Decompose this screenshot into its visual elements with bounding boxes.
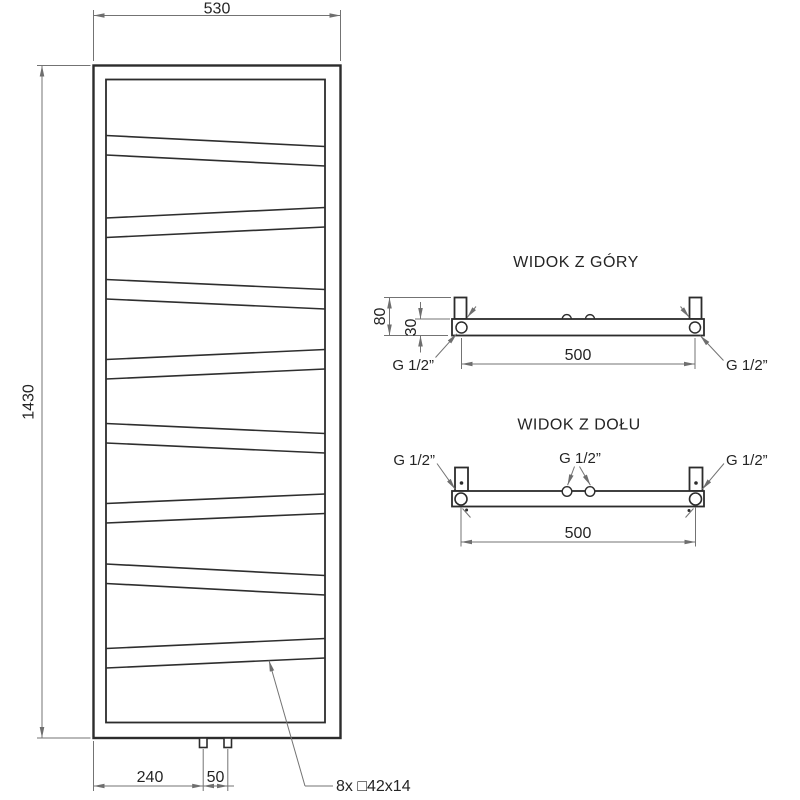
radiator-technical-drawing: 530 1430 240 50 8x □42x14 WIDOK: [0, 0, 800, 800]
tube-band-2: [106, 208, 325, 238]
leader-dot-left: [465, 509, 468, 512]
dim-240-label: 240: [137, 769, 164, 786]
dim-50-label: 50: [207, 769, 225, 786]
dim-530-label: 530: [204, 1, 231, 18]
bracket-dot-left: [460, 481, 464, 485]
wall-bracket-left: [455, 298, 467, 320]
connection-label-right: G 1/2”: [726, 357, 768, 374]
tube-spec-label: 8x □42x14: [336, 778, 411, 795]
wall-bracket-right: [690, 298, 702, 320]
leader-dot-right: [688, 509, 691, 512]
connection-label-right: G 1/2”: [726, 452, 768, 469]
connection-label-center: G 1/2”: [559, 450, 601, 467]
wall-bracket-left: [455, 468, 468, 492]
bracket-corner-arrow-right: [681, 307, 690, 318]
center-connection-circle-2: [585, 487, 595, 497]
front-view: 530 1430 240 50 8x □42x14: [21, 1, 411, 796]
dim-500-top-label: 500: [565, 347, 592, 364]
dim-500-top-view: 500: [462, 338, 696, 369]
dim-1430-label: 1430: [21, 384, 38, 420]
tube-band-4: [106, 350, 325, 380]
tube-band-5: [106, 424, 325, 454]
tube-bands: [106, 136, 325, 669]
dim-1430: 1430: [21, 66, 91, 739]
top-view: WIDOK Z GÓRY 80 30: [372, 252, 768, 374]
bottom-view: WIDOK Z DOŁU G 1/2” G 1/2” G 1/2”: [393, 417, 767, 547]
dim-30-label: 30: [403, 319, 420, 337]
tube-band-7: [106, 564, 325, 595]
collector-bar-top-view: [452, 319, 704, 336]
dim-500-bottom-view: 500: [461, 507, 696, 547]
bottom-stub-left: [200, 738, 208, 748]
dim-530: 530: [94, 1, 341, 62]
top-view-title: WIDOK Z GÓRY: [513, 252, 639, 271]
connection-circle-left: [455, 493, 467, 505]
dim-30: 30: [403, 302, 450, 353]
bottom-view-title: WIDOK Z DOŁU: [517, 417, 640, 434]
bracket-corner-arrow-left: [467, 307, 476, 318]
connection-circle-left: [456, 322, 467, 333]
wall-bracket-right: [690, 468, 703, 492]
tube-band-3: [106, 280, 325, 310]
connection-label-left: G 1/2”: [392, 357, 434, 374]
dim-240-50: 240 50: [94, 741, 235, 791]
connection-label-left: G 1/2”: [393, 452, 435, 469]
tube-band-8: [106, 639, 325, 669]
radiator-outer-frame: [94, 66, 341, 739]
tube-band-6: [106, 494, 325, 523]
dim-80-label: 80: [372, 308, 389, 326]
bottom-stub-right: [224, 738, 232, 748]
connection-circle-right: [690, 493, 702, 505]
center-connection-circle-1: [562, 487, 572, 497]
dim-500-bottom-label: 500: [565, 525, 592, 542]
collector-bar-bottom-view: [452, 491, 704, 507]
bracket-dot-right: [694, 481, 698, 485]
connection-circle-right: [690, 322, 701, 333]
technical-drawing-page: 530 1430 240 50 8x □42x14 WIDOK: [0, 0, 800, 800]
radiator-inner-frame: [106, 80, 325, 723]
tube-band-1: [106, 136, 325, 167]
